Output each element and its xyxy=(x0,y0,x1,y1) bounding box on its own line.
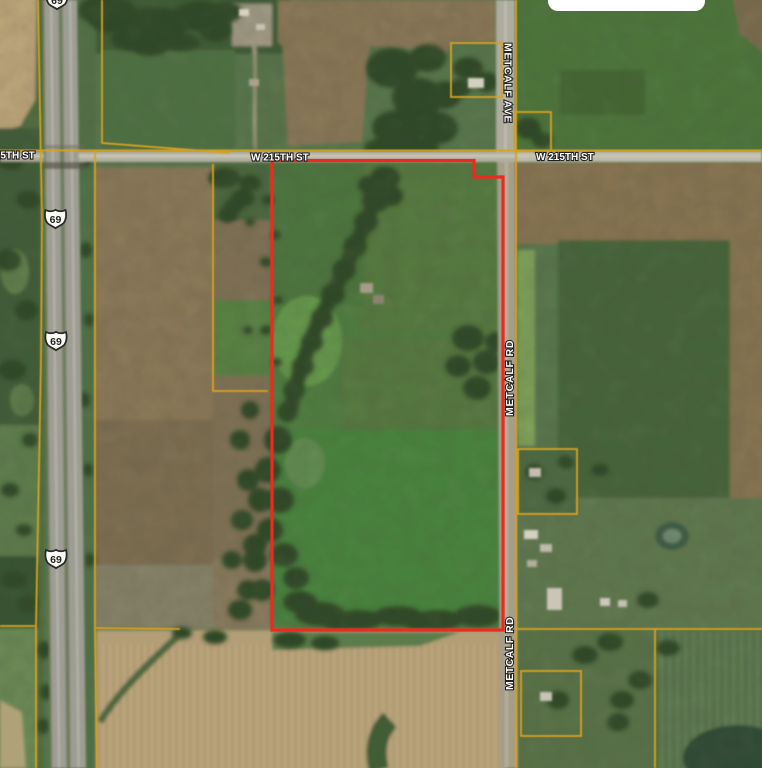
svg-text:METCALF RD: METCALF RD xyxy=(504,617,516,690)
svg-text:METCALF AVE: METCALF AVE xyxy=(502,43,514,123)
svg-text:W 215TH ST: W 215TH ST xyxy=(0,151,35,162)
svg-text:W 215TH ST: W 215TH ST xyxy=(536,152,594,163)
svg-text:69: 69 xyxy=(50,554,62,566)
svg-text:69: 69 xyxy=(50,336,62,348)
svg-text:69: 69 xyxy=(50,214,62,226)
svg-text:69: 69 xyxy=(51,0,63,7)
svg-text:W 215TH ST: W 215TH ST xyxy=(251,153,309,164)
svg-text:METCALF RD: METCALF RD xyxy=(504,340,516,416)
